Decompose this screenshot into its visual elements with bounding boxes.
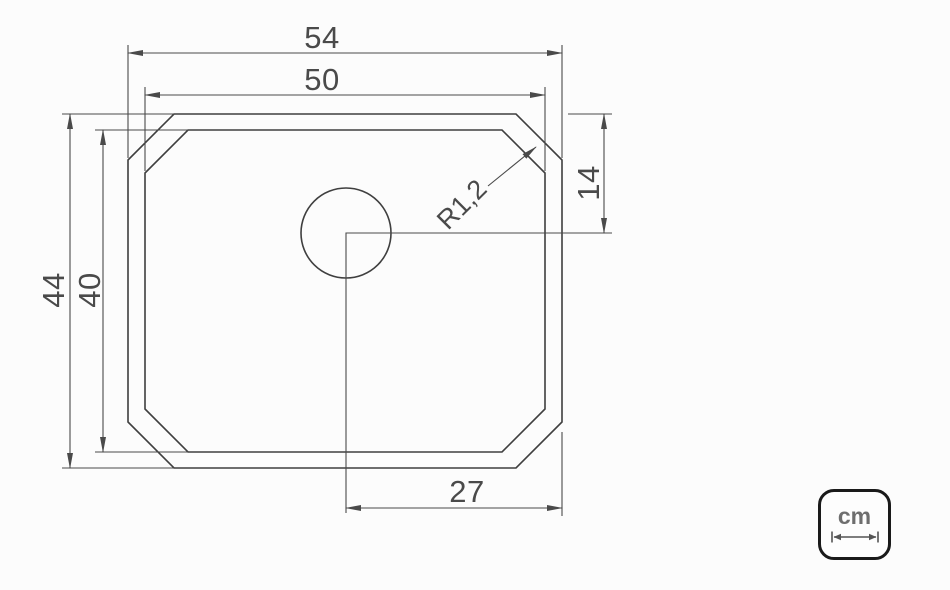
dimension-inner-width: 50 — [145, 62, 545, 97]
inner-bowl-outline — [145, 130, 545, 452]
dim-label-outer-height: 44 — [36, 272, 71, 307]
unit-label: cm — [838, 505, 871, 528]
outer-rim-outline — [128, 114, 562, 468]
dim-label-inner-height: 40 — [72, 272, 107, 307]
drain-centerline — [346, 233, 612, 513]
dim-label-corner-radius: R1,2 — [431, 174, 493, 236]
dim-label-drain-from-right: 27 — [449, 474, 484, 509]
dimension-outer-width: 54 — [128, 20, 562, 55]
technical-drawing-canvas: 54 50 44 40 14 27 R1,2 — [0, 0, 950, 590]
dim-label-inner-width: 50 — [304, 62, 339, 97]
sink-dimension-drawing: 54 50 44 40 14 27 R1,2 — [0, 0, 950, 590]
dim-label-outer-width: 54 — [304, 20, 339, 55]
unit-badge: cm — [818, 489, 891, 560]
dimension-inner-height: 40 — [72, 130, 107, 452]
double-arrow-icon — [829, 530, 881, 544]
corner-radius-callout: R1,2 — [431, 147, 536, 235]
radius-leader-line — [488, 147, 536, 186]
dim-label-drain-from-top: 14 — [571, 165, 606, 200]
sink-outline-group — [128, 114, 612, 513]
dimension-outer-height: 44 — [36, 114, 71, 468]
dimension-drain-from-right: 27 — [346, 474, 562, 509]
dimension-drain-from-top: 14 — [571, 114, 606, 233]
